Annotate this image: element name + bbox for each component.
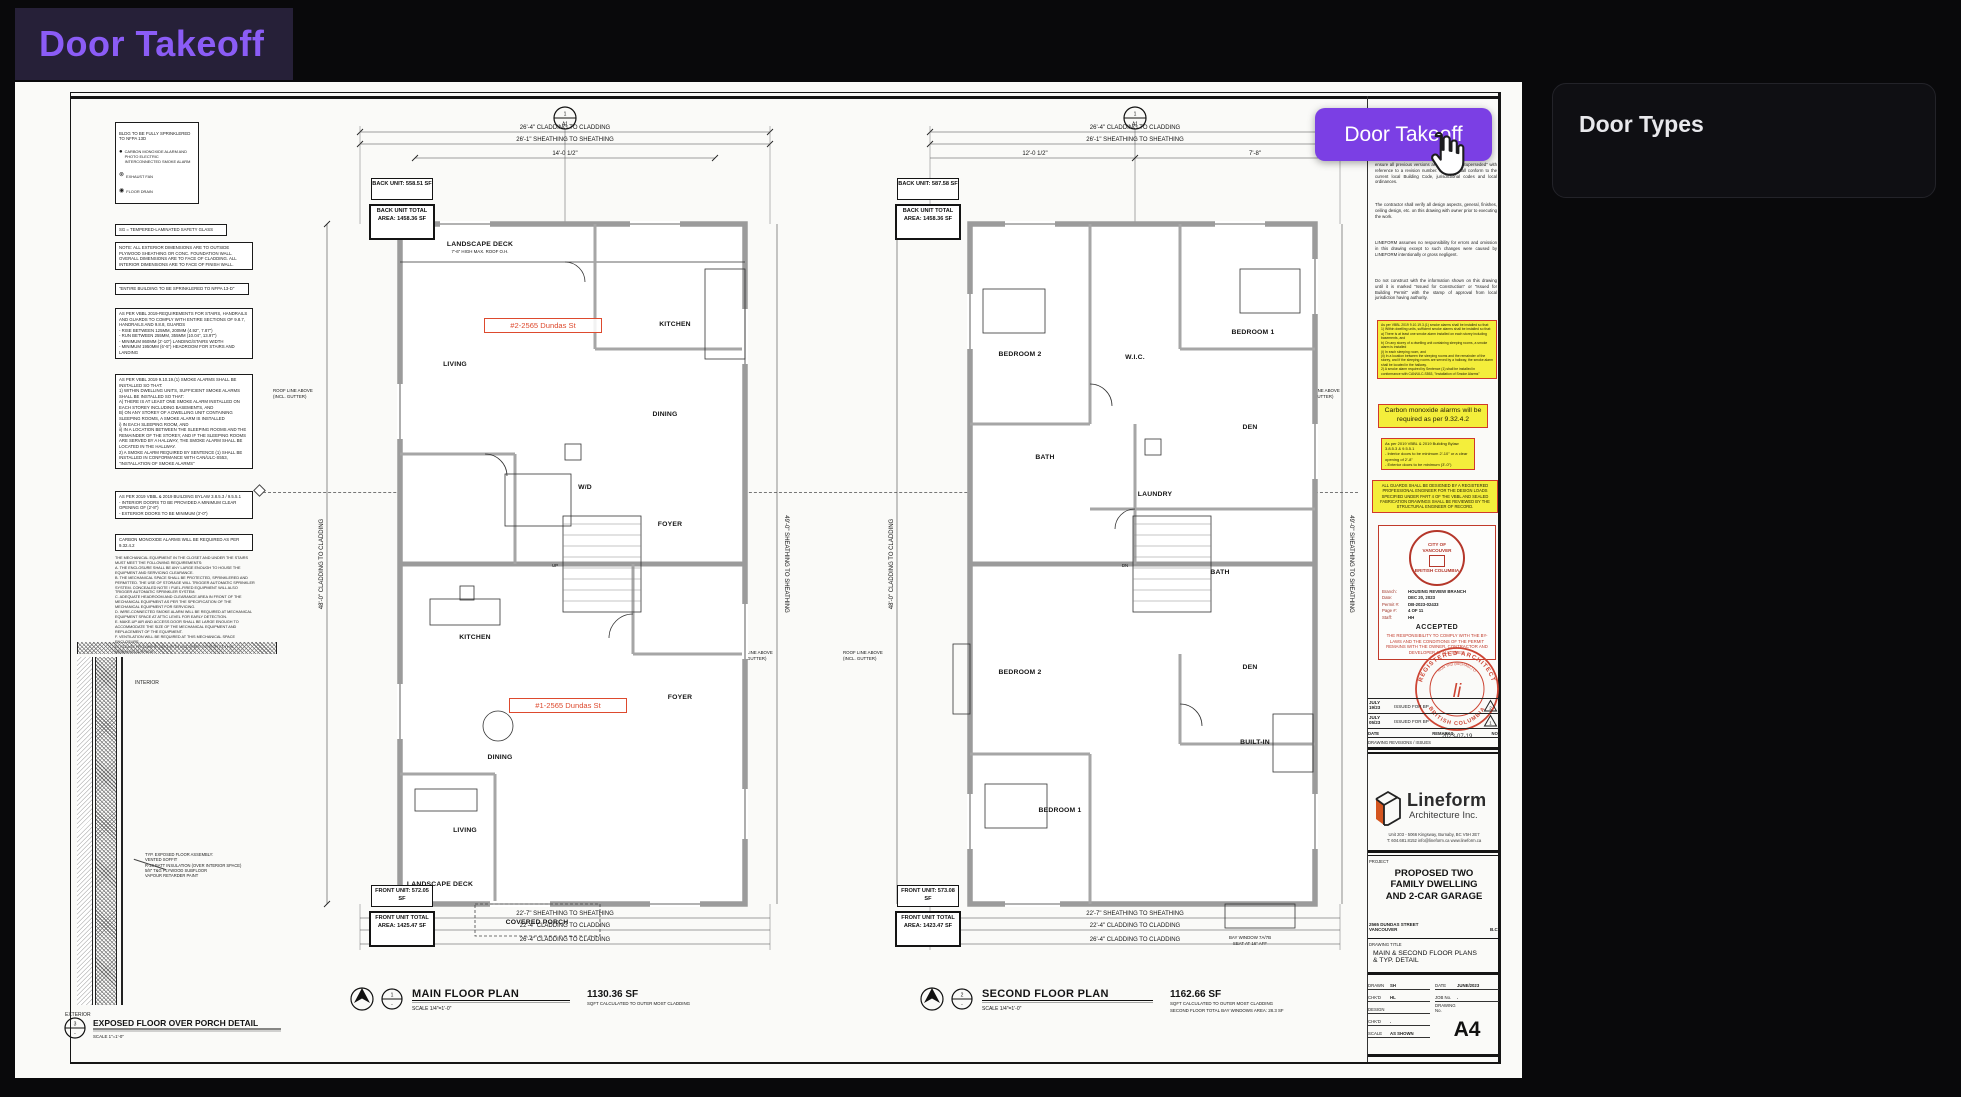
frame-left: [70, 92, 71, 1064]
detail-wall-line: [121, 657, 123, 1005]
detail-floor-hatch: [77, 642, 277, 654]
detail-wall-hatch: [95, 657, 117, 1005]
room-label: DEN: [1243, 664, 1258, 671]
plan-scale: SCALE 1/4"=1'-0": [412, 1006, 452, 1012]
revision-row: JULY 19/23 ISSUED FOR BP 2: [1368, 699, 1499, 714]
revision-table: JULY 19/23 ISSUED FOR BP 2 JULY 05/23 IS…: [1368, 698, 1499, 754]
app-window: Door Takeoff BLDG TO BE FULLY SPRINKLERE…: [0, 0, 1961, 1097]
north-arrow-icon: [354, 988, 370, 1003]
plan-bubble-sub: -: [391, 1002, 393, 1008]
room-label: BEDROOM 1: [1232, 329, 1275, 336]
plan-bubble-no: 1: [391, 993, 394, 999]
main-floor-plan-drawing: 1 A1 26'-4" CLADDING TO CLADDING 26'-1" …: [265, 94, 795, 1039]
stair-label: DN: [1122, 563, 1128, 568]
note-co-alarms: CARBON MONOXIDE ALARMS WILL BE REQUIRED …: [115, 534, 253, 551]
room-label: FOYER: [668, 694, 692, 701]
detail-assembly-note: TYP. EXPOSED FLOOR ASSEMBLY: VENTED SOFF…: [145, 852, 250, 879]
svg-text:HUN YAD (MICHAEL) LI: HUN YAD (MICHAEL) LI: [1437, 662, 1477, 673]
back-unit-total-box: BACK UNIT TOTAL AREA: 1458.36 SF: [895, 204, 961, 240]
room-label: W.I.C.: [1125, 354, 1145, 361]
dim-label: 49'-0" SHEATHING TO SHEATHING: [783, 515, 789, 613]
highlight-guards-note: ALL GUARDS SHALL BE DESIGNED BY A REGIST…: [1372, 480, 1498, 513]
general-note: Do not construct with the information sh…: [1375, 278, 1497, 301]
dim-label: 22'-7" SHEATHING TO SHEATHING: [516, 911, 614, 917]
dim-label: 49'-0" SHEATHING TO SHEATHING: [1348, 515, 1354, 613]
section-bubble-top: 1: [564, 112, 567, 118]
floor-drain-icon: ◉: [119, 188, 124, 196]
room-label: LIVING: [443, 361, 467, 368]
section-bubble-top: 1: [1134, 112, 1137, 118]
blueprint-sheet[interactable]: BLDG TO BE FULLY SPRINKLERED TO NFPA 13D…: [15, 82, 1522, 1078]
revision-triangle-icon: 1: [1484, 715, 1497, 727]
city-permit-stamp: CITY OF VANCOUVER BRITISH COLUMBIA Branc…: [1378, 525, 1496, 660]
general-note: ensure all previous versions are marked …: [1375, 162, 1497, 185]
stamp-status: ACCEPTED: [1382, 624, 1492, 631]
door-takeoff-button[interactable]: Door Takeoff: [1315, 108, 1492, 161]
project-name: PROPOSED TWO FAMILY DWELLING AND 2-CAR G…: [1369, 868, 1499, 902]
legend-header: BLDG TO BE FULLY SPRINKLERED TO NFPA 13D: [119, 131, 195, 142]
legend-item-label: EXHAUST FAN: [126, 174, 153, 180]
note-doors: AS PER 2019 VBBL & 2019 BUILDING BYLAW 3…: [115, 491, 253, 519]
note-safety-glass: SG = TEMPERED-LAMINATED SAFETY GLASS: [115, 224, 227, 236]
co-smoke-alarm-icon: ●: [119, 149, 123, 164]
titleblock-fields-left: DRAWNSH CHK'DHL DESIGN CHK'D. SCALEAS SH…: [1368, 978, 1430, 1038]
stair-label: UP: [552, 563, 558, 568]
firm-address: Unit 203 - 5066 Kingsway, Burnaby, BC V5…: [1369, 832, 1499, 844]
general-note: The contractor shall verify all design a…: [1375, 202, 1497, 219]
roof-note: ROOF LINE ABOVE: [273, 388, 313, 393]
dim-label: 26'-1" SHEATHING TO SHEATHING: [516, 137, 614, 143]
highlight-smoke-alarm-note: As per VBBL 2019 9.10.19.3.(1) smoke ala…: [1377, 320, 1497, 379]
dim-label: 14'-0 1/2": [552, 151, 577, 157]
north-arrow-icon: [924, 988, 940, 1003]
plan-area: 1162.66 SF: [1170, 989, 1221, 1000]
dim-label: 48'-0" CLADDING TO CLADDING: [889, 518, 895, 609]
room-label: DINING: [653, 411, 678, 418]
front-unit-total-box: FRONT UNIT TOTAL AREA: 1423.47 SF: [895, 911, 961, 947]
dim-label: 26'-4" CLADDING TO CLADDING: [520, 125, 611, 131]
dim-label: 48'-0" CLADDING TO CLADDING: [319, 518, 325, 609]
bay-window-note: BAY WINDOW 7A/7B: [1229, 935, 1271, 940]
app-title: Door Takeoff: [39, 23, 264, 65]
room-label: BEDROOM 2: [999, 669, 1042, 676]
revision-header: DATE REMARKS NO.: [1368, 729, 1499, 738]
room-label: BEDROOM 2: [999, 351, 1042, 358]
brand-name: Lineform: [1407, 790, 1486, 811]
lineform-logo: [1371, 788, 1405, 828]
svg-text:REGISTERED ARCHITECT: REGISTERED ARCHITECT: [1418, 651, 1496, 683]
front-unit-total-box: FRONT UNIT TOTAL AREA: 1425.47 SF: [369, 911, 435, 947]
address-label-front-unit: #1-2565 Dundas St: [509, 698, 627, 713]
project-label: PROJECT: [1369, 859, 1389, 864]
room-label: LIVING: [453, 827, 477, 834]
room-label: KITCHEN: [459, 634, 491, 641]
seal-name: HUN YAD (MICHAEL) LI: [1437, 662, 1477, 673]
exhaust-fan-icon: ⊗: [119, 172, 124, 180]
dim-label: 22'-7" SHEATHING TO SHEATHING: [1086, 911, 1184, 917]
back-unit-area-box: BACK UNIT: 558.51 SF: [371, 178, 433, 200]
room-label: LAUNDRY: [1138, 491, 1173, 498]
room-label: BEDROOM 1: [1039, 807, 1082, 814]
plan-area-note: SECOND FLOOR TOTAL BAY WINDOWS AREA: 28.…: [1170, 1008, 1284, 1013]
back-unit-area-box: BACK UNIT: 587.58 SF: [897, 178, 959, 200]
site-address: 2565 DUNDAS STREET VANCOUVERB.C.: [1369, 922, 1499, 932]
room-note: 7'-6" HIGH MAX. ROOF O.H.: [451, 249, 508, 254]
city-seal-icon: CITY OF VANCOUVER BRITISH COLUMBIA: [1409, 530, 1465, 586]
sheet-number: A4: [1435, 1018, 1499, 1042]
dim-label: 26'-1" SHEATHING TO SHEATHING: [1086, 137, 1184, 143]
note-dimensions: NOTE: ALL EXTERIOR DIMENSIONS ARE TO OUT…: [115, 242, 253, 270]
detail-bubble-sub: -: [74, 1031, 76, 1037]
bay-window-note: SEAT AT 16" AFF: [1233, 941, 1267, 946]
app-title-badge: Door Takeoff: [15, 8, 293, 80]
revision-caption: DRAWING REVISIONS / ISSUES: [1368, 738, 1499, 746]
svg-text:2: 2: [1489, 706, 1492, 711]
section-marker-diamond: [253, 484, 266, 497]
svg-text:1: 1: [1489, 721, 1492, 726]
roof-note: ROOF LINE ABOVE: [843, 650, 883, 655]
plan-bubble-sub: -: [961, 1002, 963, 1008]
general-note: LINEFORM assumes no responsibility for e…: [1375, 240, 1497, 257]
note-stairs: AS PER VBBL 2019-REQUIREMENTS FOR STAIRS…: [115, 308, 253, 359]
note-smoke-alarms: AS PER VBBL 2019 9.10.19.(1) SMOKE ALARM…: [115, 374, 253, 469]
legend-item-label: CARBON MONOXIDE ALARM AND PHOTO ELECTRIC…: [125, 149, 195, 164]
room-label: LANDSCAPE DECK: [447, 241, 513, 248]
brand-subtitle: Architecture Inc.: [1409, 810, 1478, 821]
revision-triangle-icon: 2: [1484, 700, 1497, 712]
dim-label: 22'-4" CLADDING TO CLADDING: [520, 923, 611, 929]
roof-note: (INCL. GUTTER): [843, 656, 877, 661]
frame-top-thin: [70, 92, 1500, 93]
titleblock-fields-right: DATEJUNE/2023 JOB No.. DRAWING No. A4: [1435, 978, 1499, 1042]
room-label: BATH: [1210, 569, 1229, 576]
dim-label: 12'-0 1/2": [1022, 151, 1047, 157]
detail-bubble-no: 3: [74, 1022, 77, 1028]
plan-area-note: SQFT CALCULATED TO OUTER MOST CLADDING: [587, 1001, 691, 1006]
dim-label: 26'-4" CLADDING TO CLADDING: [1090, 125, 1181, 131]
room-label: DEN: [1243, 424, 1258, 431]
door-types-title: Door Types: [1579, 111, 1935, 138]
room-label: BATH: [1035, 454, 1054, 461]
seal-ring-top: REGISTERED ARCHITECT: [1418, 651, 1496, 683]
frame-bottom: [70, 1062, 1500, 1064]
legend-item-label: FLOOR DRAIN: [126, 189, 153, 195]
detail-title: EXPOSED FLOOR OVER PORCH DETAIL: [93, 1018, 258, 1028]
plan-title: SECOND FLOOR PLAN: [982, 988, 1109, 1000]
dim-label: 26'-4" CLADDING TO CLADDING: [1090, 937, 1181, 943]
highlight-door-size-note: As per 2019 VBBL & 2019 Building Bylaw 3…: [1381, 438, 1475, 470]
legend-box: BLDG TO BE FULLY SPRINKLERED TO NFPA 13D…: [115, 122, 199, 204]
room-label: W/D: [578, 484, 592, 491]
note-sprinklered: "ENTIRE BUILDING TO BE SPRINKLERED TO NF…: [115, 283, 249, 295]
dim-label: 7'-8": [1249, 151, 1261, 157]
plan-area: 1130.36 SF: [587, 989, 638, 1000]
front-unit-area-box: FRONT UNIT: 572.05 SF: [371, 885, 433, 907]
frame-right: [1498, 92, 1501, 1064]
dim-label: 22'-4" CLADDING TO CLADDING: [1090, 923, 1181, 929]
room-label: BUILT-IN: [1240, 739, 1270, 746]
dim-label: 26'-4" CLADDING TO CLADDING: [520, 937, 611, 943]
detail-scale: SCALE 1"=1'-0": [93, 1034, 124, 1039]
room-label: KITCHEN: [659, 321, 691, 328]
detail-interior-label: INTERIOR: [135, 680, 159, 686]
plan-bubble-no: 2: [961, 993, 964, 999]
plan-scale: SCALE 1/4"=1'-0": [982, 1006, 1022, 1012]
titleblock-divider: [1367, 96, 1368, 1062]
plan-title: MAIN FLOOR PLAN: [412, 988, 519, 1000]
room-label: DINING: [488, 754, 513, 761]
address-label-back-unit: #2-2565 Dundas St: [484, 318, 602, 333]
detail-insulation-hatch: [77, 657, 93, 1005]
highlight-co-alarm-note: Carbon monoxide alarms will be required …: [1378, 404, 1488, 428]
revision-row: JULY 05/23 ISSUED FOR BP 1: [1368, 714, 1499, 729]
room-label: FOYER: [658, 521, 682, 528]
roof-note: (INCL. GUTTER): [273, 394, 307, 399]
back-unit-total-box: BACK UNIT TOTAL AREA: 1458.36 SF: [369, 204, 435, 240]
front-unit-area-box: FRONT UNIT: 573.08 SF: [897, 885, 959, 907]
drawing-title: MAIN & SECOND FLOOR PLANS & TYP. DETAIL: [1373, 950, 1499, 964]
door-types-panel: Door Types: [1552, 83, 1936, 198]
note-mechanical: THE MECHANICAL EQUIPMENT IN THE CLOSET A…: [115, 556, 255, 654]
drawing-title-label: DRAWING TITLE: [1369, 942, 1402, 947]
plan-area-note: SQFT CALCULATED TO OUTER MOST CLADDING: [1170, 1001, 1274, 1006]
